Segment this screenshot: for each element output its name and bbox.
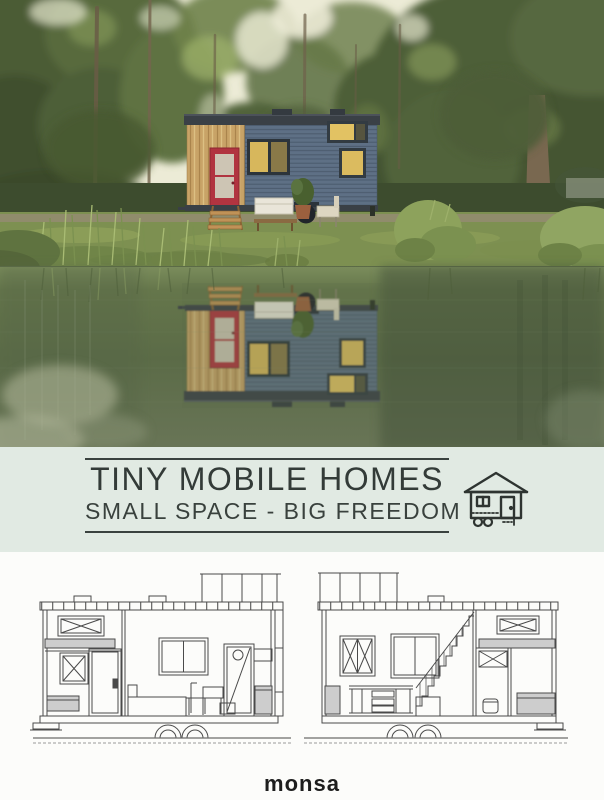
title-block: TINY MOBILE HOMES SMALL SPACE - BIG FREE… [85,447,449,552]
floorplan-right [304,573,568,743]
couch [128,685,186,716]
lakeside-scene [0,0,604,451]
tiny-house-icon [462,468,530,530]
kitchen-unit [325,686,413,714]
toilet [483,699,498,713]
floorplan-drawings [0,552,604,752]
bed [517,693,555,714]
book-cover: TINY MOBILE HOMES SMALL SPACE - BIG FREE… [0,0,604,800]
title-rule-top [85,458,449,460]
publisher-logo: monsa [0,771,604,797]
floorplans [0,552,604,752]
title-band: TINY MOBILE HOMES SMALL SPACE - BIG FREE… [0,447,604,552]
wheel-icon [484,518,492,526]
title-rule-bottom [85,531,449,533]
storage-box [255,198,293,214]
bench [254,219,297,223]
wheel-fenders [387,725,413,738]
book-title: TINY MOBILE HOMES [85,461,449,498]
wheel-fenders [155,725,181,738]
cover-photo [0,0,604,451]
wheel-icon [474,518,482,526]
entry-steps [208,211,242,229]
book-subtitle: SMALL SPACE - BIG FREEDOM [85,498,449,525]
staircase [416,612,474,716]
floorplan-left [30,574,291,743]
